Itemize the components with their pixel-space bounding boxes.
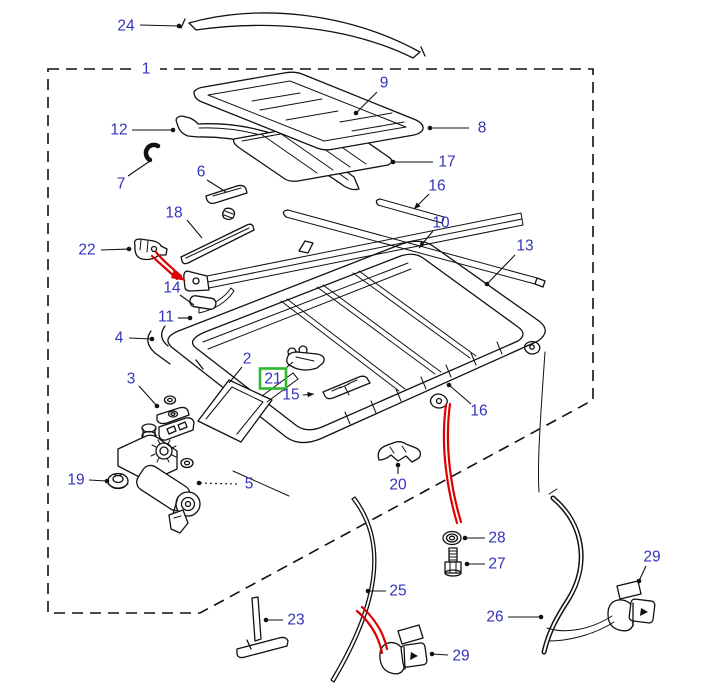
parts-diagram: 2411276182214114981716101322115319523201…: [0, 0, 717, 686]
leader-dot-29: [637, 579, 642, 584]
part-24-deflector: [181, 13, 425, 58]
leader-dot-26: [539, 615, 544, 620]
part-label-2: 2: [243, 351, 252, 368]
leader-line-29: [639, 566, 646, 581]
leader-dot-5: [197, 481, 202, 486]
part-label-13: 13: [516, 238, 533, 255]
part-label-23: 23: [287, 612, 304, 629]
leader-line-5: [199, 483, 237, 484]
leader-dot-16: [447, 383, 452, 388]
leader-line-7: [128, 161, 150, 176]
part-label-29: 29: [452, 648, 469, 665]
part-6-bracket: [206, 185, 247, 219]
leader-dot-17: [391, 160, 396, 165]
part-11-slider: [189, 295, 216, 310]
leader-dot-13: [485, 282, 490, 287]
part-label-27: 27: [488, 556, 505, 573]
leader-dot-24: [177, 24, 182, 29]
leader-dot-9: [354, 111, 359, 116]
part-22-clip: [135, 239, 167, 260]
part-label-22: 22: [78, 242, 95, 259]
leader-line-3: [139, 386, 157, 406]
leader-dot-19: [105, 479, 110, 484]
part-21-clip: [287, 346, 324, 370]
leader-dot-8: [428, 126, 433, 131]
part-label-17: 17: [438, 154, 455, 171]
leader-line-16: [449, 385, 471, 404]
leader-dot-11: [188, 316, 193, 321]
leader-line-19: [89, 480, 107, 481]
part-label-24: 24: [117, 18, 135, 35]
leader-line-13: [487, 255, 515, 284]
leader-dot-29: [430, 652, 435, 657]
part-label-7: 7: [117, 176, 126, 193]
part-label-28: 28: [488, 530, 505, 547]
part-label-21: 21: [264, 371, 281, 388]
part-label-26: 26: [486, 609, 503, 626]
part-28-washer: [443, 532, 461, 545]
leader-dot-12: [171, 128, 176, 133]
part-3-bracket: [157, 396, 194, 440]
sunroof-exploded-diagram: 2411276182214114981716101322115319523201…: [0, 0, 717, 686]
part-20-clip: [378, 442, 420, 462]
part-label-4: 4: [115, 330, 124, 347]
leader-dot-28: [463, 536, 468, 541]
part-label-19: 19: [67, 472, 84, 489]
leader-dot-23: [264, 618, 269, 623]
part-2-flap: [198, 373, 298, 442]
part-label-14: 14: [163, 280, 181, 297]
part-label-29: 29: [643, 549, 660, 566]
part-26-seal: [544, 489, 581, 652]
part-label-5: 5: [245, 476, 254, 493]
leader-dot-4: [150, 337, 155, 342]
leader-dot-27: [465, 562, 470, 567]
leader-line-29: [432, 654, 448, 655]
leader-dot-20: [396, 463, 401, 468]
leader-dot-25: [366, 589, 371, 594]
leader-dot-3: [155, 404, 160, 409]
part-label-9: 9: [380, 75, 389, 92]
leader-line-24: [140, 25, 179, 26]
part-label-8: 8: [478, 120, 487, 137]
leader-line-6: [207, 180, 226, 192]
part-29-clip-right: [608, 581, 655, 631]
part-label-18: 18: [165, 205, 182, 222]
part-7-hook: [146, 145, 158, 160]
part-15-strip: [323, 376, 370, 398]
part-label-6: 6: [197, 164, 206, 181]
part-label-15: 15: [282, 387, 299, 404]
part-19-grommet: [108, 474, 128, 489]
part-label-20: 20: [389, 477, 407, 494]
leader-dot-22: [127, 247, 132, 252]
part-27-screw: [445, 548, 461, 576]
leader-line-22: [101, 249, 129, 250]
part-5-motor: [118, 424, 200, 533]
part-label-16: 16: [470, 403, 487, 420]
part-18-strip: [181, 224, 254, 263]
part-23-tool: [237, 597, 288, 658]
leader-line-18: [187, 220, 202, 238]
part-label-16: 16: [428, 178, 445, 195]
part-label-10: 10: [432, 215, 450, 232]
part-label-1: 1: [142, 61, 151, 78]
part-label-3: 3: [127, 371, 136, 388]
part-label-11: 11: [158, 309, 174, 326]
part-label-25: 25: [389, 583, 406, 600]
part-label-12: 12: [110, 122, 127, 139]
